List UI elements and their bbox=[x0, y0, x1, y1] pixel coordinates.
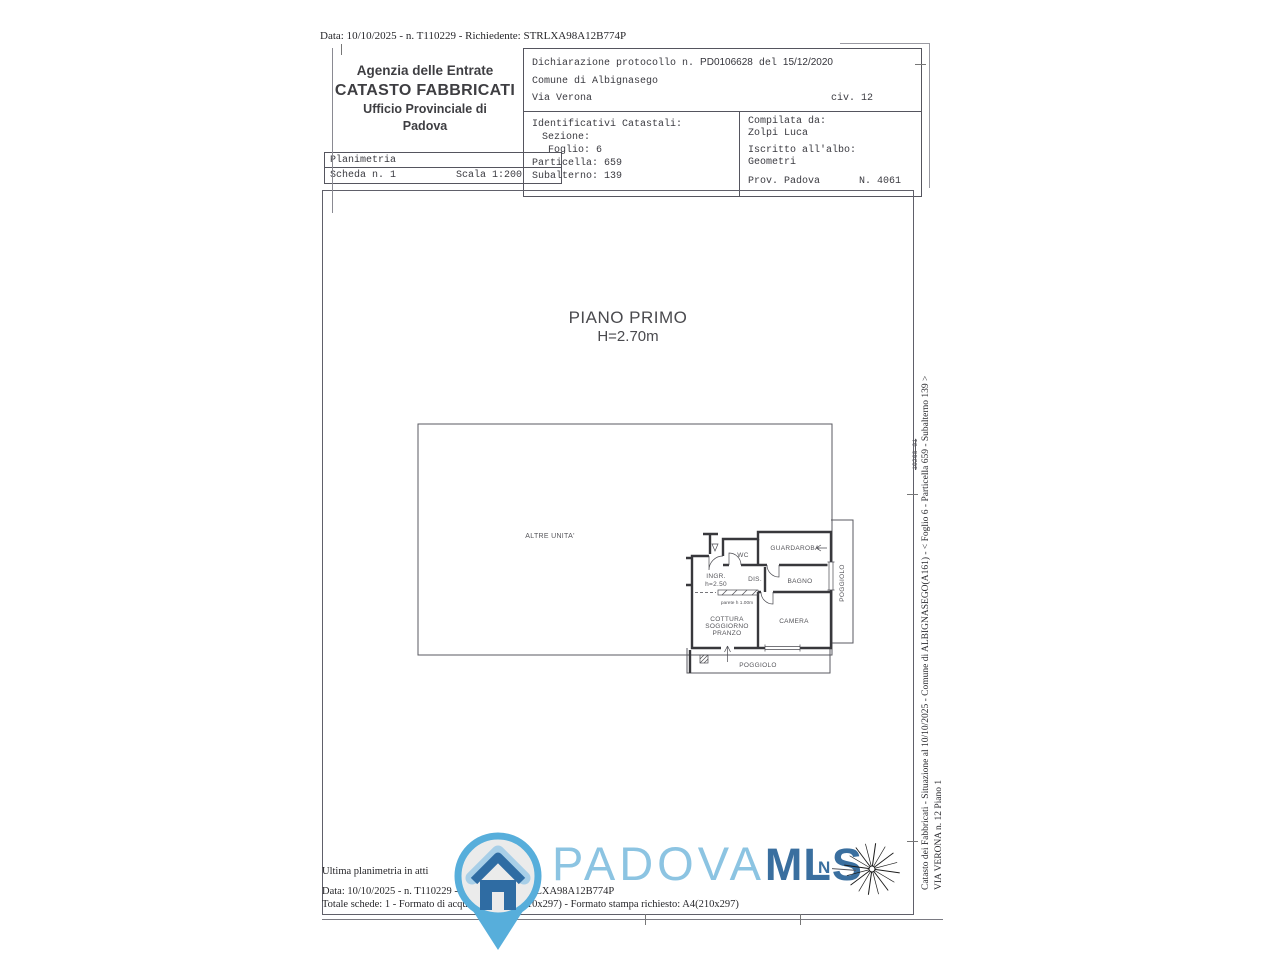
label-guardaroba: GUARDAROBA bbox=[770, 545, 820, 552]
register-tick bbox=[915, 64, 926, 65]
compiler-number: N. 4061 bbox=[859, 176, 901, 188]
label-parete: parete h 1.00m bbox=[721, 600, 753, 606]
label-ingr: INGR. bbox=[706, 573, 726, 580]
scala-value: Scala 1:200 bbox=[456, 170, 522, 181]
office-line: Ufficio Provinciale di bbox=[328, 101, 522, 118]
register-tick bbox=[645, 914, 646, 925]
brand-padova: PADOVA bbox=[552, 837, 765, 890]
label-altre-unita: ALTRE UNITA' bbox=[525, 533, 574, 540]
label-cottura: COTTURA bbox=[710, 616, 744, 623]
catasto-title: CATASTO FABBRICATI bbox=[328, 80, 522, 101]
catastal-identifiers: Identificativi Catastali: Sezione: Fogli… bbox=[524, 112, 740, 196]
label-poggiolo-bottom: POGGIOLO bbox=[739, 662, 776, 669]
label-poggiolo-right: POGGIOLO bbox=[839, 564, 846, 601]
civic-number: civ. 12 bbox=[831, 90, 873, 108]
sidebar-rotated-text: Catasto dei Fabbricati - Situazione al 1… bbox=[920, 370, 946, 890]
sezione-field: Sezione: bbox=[532, 131, 731, 144]
office-city: Padova bbox=[328, 118, 522, 134]
comune-line: Comune di Albignasego bbox=[532, 73, 913, 91]
register-tick bbox=[907, 494, 918, 495]
poggiolo-bottom-outline bbox=[687, 648, 830, 673]
declaration-line: Dichiarazione protocollo n. PD0106628 de… bbox=[532, 54, 913, 73]
register-tick bbox=[800, 914, 801, 925]
floor-name: PIANO PRIMO bbox=[498, 308, 758, 328]
particella-field: Particella: 659 bbox=[532, 157, 731, 170]
sheet-edge-top bbox=[840, 43, 929, 44]
watermark-brand: PADOVAMLS bbox=[552, 840, 863, 887]
label-camera: CAMERA bbox=[779, 618, 809, 625]
sidebar-line1: Catasto dei Fabbricati - Situazione al 1… bbox=[920, 370, 933, 890]
register-tick bbox=[907, 841, 918, 842]
crop-mark-line bbox=[332, 48, 333, 213]
low-wall bbox=[718, 590, 758, 595]
subalterno-field: Subalterno: 139 bbox=[532, 170, 731, 183]
protocol-number: PD0106628 bbox=[700, 57, 753, 68]
register-tick bbox=[341, 44, 342, 55]
house-pin-icon bbox=[450, 828, 546, 954]
sidebar-line2: VIA VERONA n. 12 Piano 1 bbox=[933, 370, 946, 890]
footer-ultima: Ultima planimetria in atti bbox=[322, 866, 428, 877]
compiler-register: Geometri bbox=[748, 157, 913, 169]
label-dis: DIS. bbox=[748, 576, 762, 583]
compiler-name: Zolpi Luca bbox=[748, 128, 913, 140]
entry-door bbox=[709, 556, 723, 570]
declaration-box: Dichiarazione protocollo n. PD0106628 de… bbox=[523, 48, 922, 197]
street-name: Via Verona bbox=[532, 90, 592, 108]
sidebar-struck-note: 10268-01 bbox=[912, 439, 919, 470]
label-bagno: BAGNO bbox=[788, 578, 813, 585]
floor-title: PIANO PRIMO H=2.70m bbox=[498, 308, 758, 346]
compiler-province: Prov. Padova bbox=[748, 176, 820, 188]
top-meta-line: Data: 10/10/2025 - n. T110229 - Richiede… bbox=[320, 30, 626, 42]
compass-rose-icon bbox=[842, 839, 902, 899]
camera-door bbox=[761, 592, 773, 604]
north-letter: N bbox=[818, 858, 830, 878]
entry-arrow bbox=[712, 544, 718, 551]
bagno-door bbox=[767, 565, 779, 577]
label-wc: WC bbox=[737, 552, 748, 559]
altre-unita-outline bbox=[418, 424, 832, 655]
floor-height: H=2.70m bbox=[498, 328, 758, 346]
label-pranzo: PRANZO bbox=[713, 630, 742, 637]
foglio-field: Foglio: 6 bbox=[532, 144, 731, 157]
label-ingr-height: h=2.50 bbox=[705, 581, 727, 588]
sheet-edge-bottom bbox=[322, 919, 943, 920]
label-soggiorno: SOGGIORNO bbox=[705, 623, 749, 630]
agency-header: Agenzia delle Entrate CATASTO FABBRICATI… bbox=[328, 62, 522, 134]
agency-name: Agenzia delle Entrate bbox=[328, 62, 522, 80]
compiler-info: Compilata da: Zolpi Luca Iscritto all'al… bbox=[740, 112, 921, 196]
sheet-edge-right bbox=[929, 43, 930, 188]
cadastral-document: Data: 10/10/2025 - n. T110229 - Richiede… bbox=[0, 0, 1280, 960]
scheda-number: Scheda n. 1 bbox=[330, 170, 396, 181]
protocol-date: 15/12/2020 bbox=[783, 57, 833, 68]
floor-plan-drawing: ALTRE UNITA' WC GUARDAROBA INGR. h=2.50 … bbox=[415, 415, 860, 690]
